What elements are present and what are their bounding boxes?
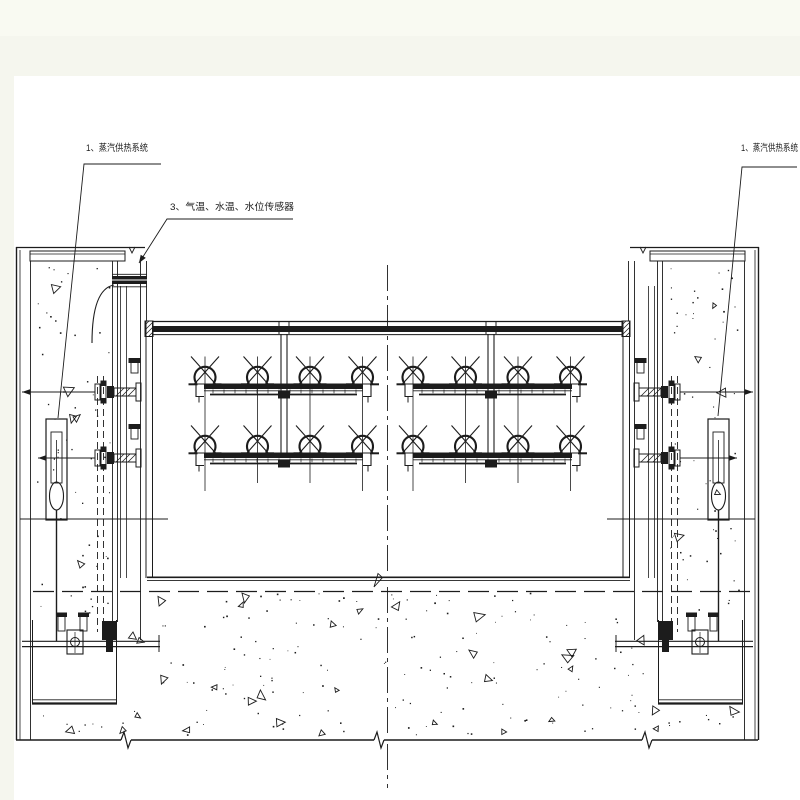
label-steam-system-right: 1、蒸汽供热系统 — [741, 142, 798, 154]
label-steam-system-left: 1、蒸汽供热系统 — [86, 142, 148, 154]
drawing-sheet: 1、蒸汽供热系统 3、气温、水温、水位传感器 1、蒸汽供热系统 — [0, 0, 800, 800]
label-sensors: 3、气温、水温、水位传感器 — [170, 201, 295, 213]
technical-drawing: 1、蒸汽供热系统 3、气温、水温、水位传感器 1、蒸汽供热系统 — [0, 0, 800, 800]
